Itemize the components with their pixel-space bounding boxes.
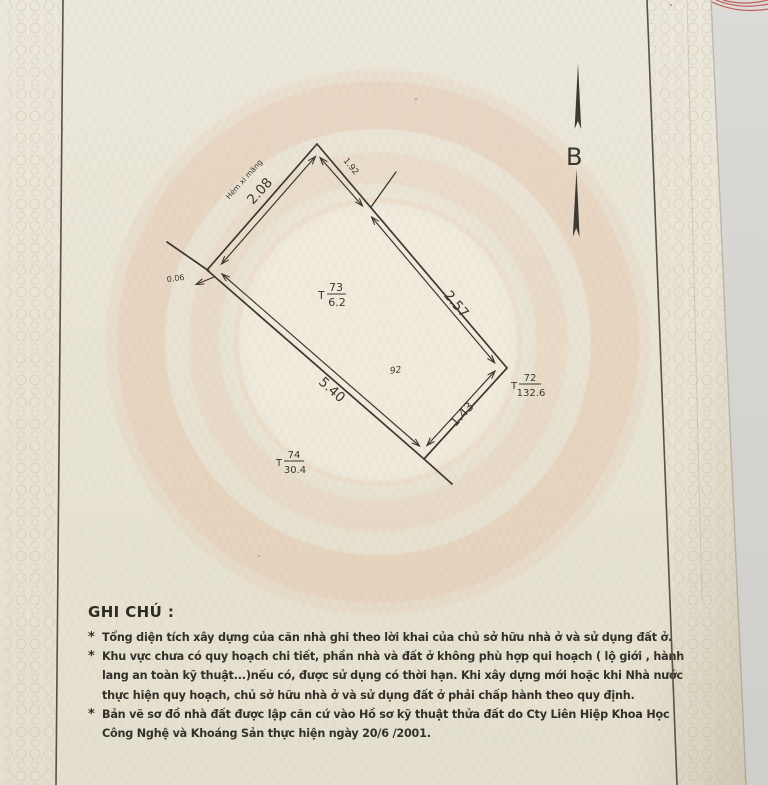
drawing-overlay: B Hẻm xi măng 2.08 1.92 2.57 1.43 5.40 0… — [0, 0, 768, 785]
survey-point-73: T 73 6.2 — [317, 281, 346, 309]
red-corner-arcs — [712, 0, 768, 10]
point-value: 132.6 — [517, 388, 546, 399]
point-number: 74 — [288, 450, 301, 461]
survey-point-74: T 74 30.4 — [275, 450, 306, 476]
point-number: 72 — [524, 373, 537, 384]
tick-leader-line — [371, 172, 396, 207]
point-prefix: T — [317, 289, 325, 302]
north-arrow-upper-needle — [575, 63, 582, 129]
dim-label-1-92: 1.92 — [341, 156, 361, 177]
point-value: 6.2 — [328, 296, 346, 309]
corner-extension-line — [424, 459, 452, 484]
dim-arrow-2-57 — [372, 217, 495, 363]
scanned-land-survey-page: { "north_arrow": { "label": "B" }, "plot… — [0, 0, 768, 785]
area-label-92: 92 — [389, 365, 402, 377]
point-value: 30.4 — [284, 465, 306, 476]
survey-point-72: T 72 132.6 — [510, 373, 545, 399]
left-margin-ornament — [4, 0, 63, 785]
dust-specks — [258, 4, 672, 557]
north-arrow-label: B — [566, 143, 582, 171]
dim-arrow-2-08 — [222, 157, 316, 265]
parcel-edge-southwest — [207, 270, 424, 459]
dim-label-0-06: 0.06 — [166, 273, 185, 284]
point-number: 73 — [329, 281, 343, 294]
north-arrow-lower-needle — [573, 169, 580, 237]
dim-label-1-43: 1.43 — [447, 399, 477, 430]
north-arrow: B — [566, 63, 582, 237]
parcel-edge-northeast — [317, 144, 507, 368]
point-prefix: T — [275, 458, 283, 469]
dim-arrow-0-06 — [196, 277, 214, 285]
street-extension-line — [167, 242, 209, 271]
